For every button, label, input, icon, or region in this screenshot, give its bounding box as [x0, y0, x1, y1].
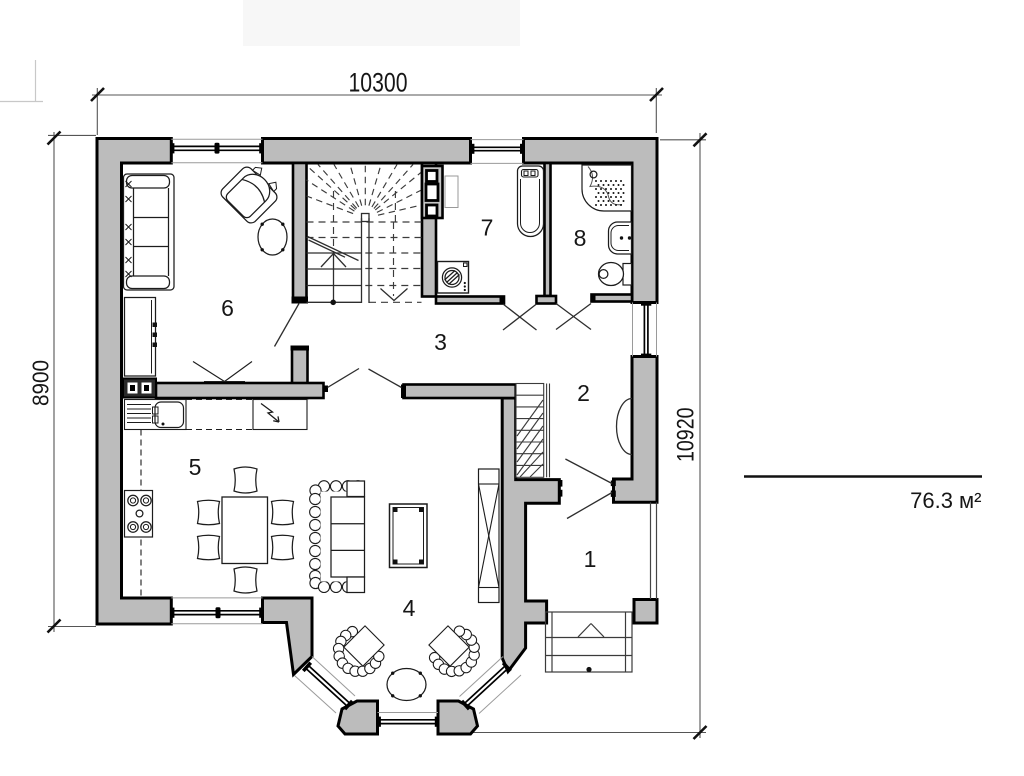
- svg-text:10920: 10920: [673, 408, 700, 463]
- svg-text:5: 5: [189, 454, 202, 480]
- svg-text:2: 2: [577, 380, 590, 406]
- svg-text:8: 8: [574, 225, 587, 251]
- svg-text:1: 1: [584, 546, 597, 572]
- svg-text:76.3 м²: 76.3 м²: [910, 488, 981, 513]
- svg-text:3: 3: [434, 329, 447, 355]
- svg-text:8900: 8900: [28, 360, 54, 406]
- svg-text:10300: 10300: [349, 68, 408, 98]
- svg-text:6: 6: [221, 295, 234, 321]
- svg-text:7: 7: [481, 215, 494, 241]
- svg-text:4: 4: [403, 595, 416, 621]
